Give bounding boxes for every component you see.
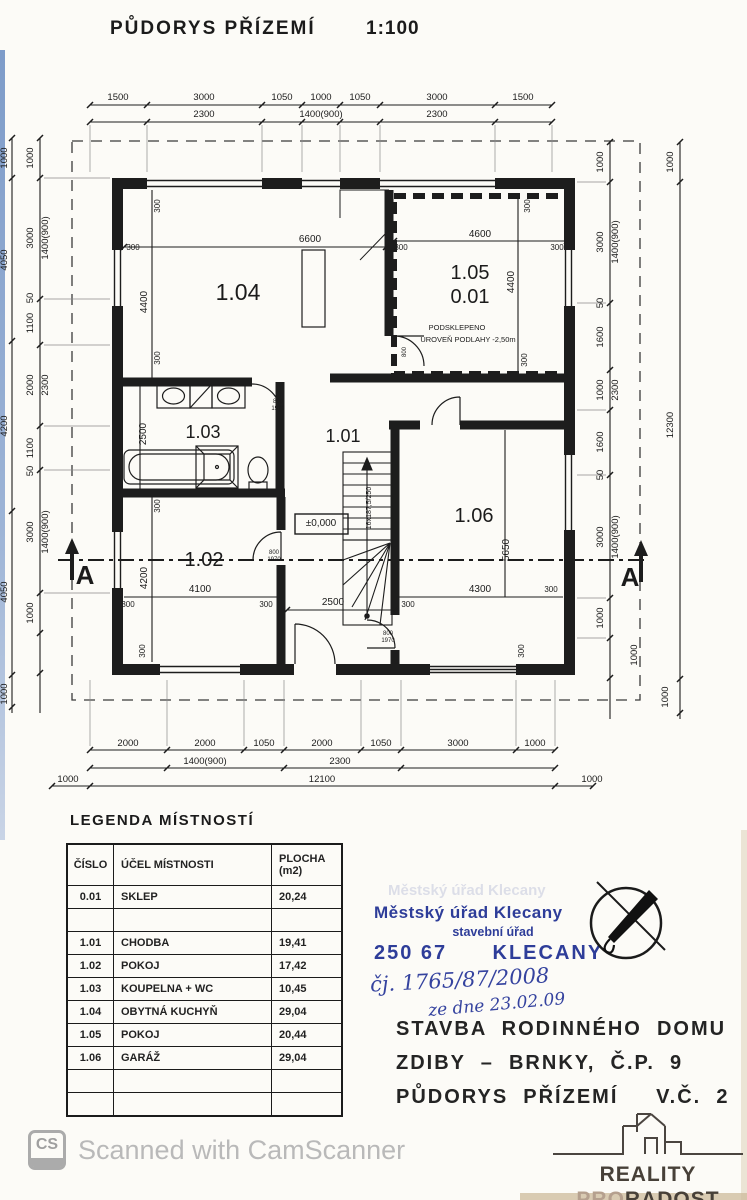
dimension-label: 1000 bbox=[25, 147, 36, 168]
legend-room-number: 1.06 bbox=[67, 1047, 114, 1070]
dimension-label: 6600 bbox=[299, 234, 322, 245]
logo-text-pro: PRO bbox=[576, 1188, 625, 1200]
legend-col-area: PLOCHA (m2) bbox=[272, 844, 343, 886]
section-mark-label: A bbox=[76, 560, 95, 590]
stamp-office-dept: stavební úřad bbox=[374, 925, 612, 939]
dimension-label: 1000 bbox=[25, 602, 36, 623]
dimension-label: 1000 bbox=[57, 774, 78, 785]
legend-row: 1.01CHODBA19,41 bbox=[67, 932, 342, 955]
legend-room-area: 20,24 bbox=[272, 886, 343, 909]
dimension-label: 1500 bbox=[512, 92, 533, 103]
dimension-label: 1100 bbox=[25, 438, 36, 458]
dimension-label: 1000 bbox=[310, 92, 331, 103]
dimension-label: 2500 bbox=[322, 597, 345, 608]
dimension-label: 3000 bbox=[595, 526, 606, 547]
legend-room-purpose: CHODBA bbox=[114, 932, 272, 955]
door-size-label: 800 bbox=[383, 631, 394, 637]
dimension-label: 1500 bbox=[107, 92, 128, 103]
legend-room-purpose: POKOJ bbox=[114, 955, 272, 978]
dimension-label: 300 bbox=[520, 353, 529, 367]
dimension-label: 4300 bbox=[469, 584, 492, 595]
dimension-label: 1000 bbox=[0, 683, 10, 704]
dimension-label: 300 bbox=[523, 199, 532, 213]
dimension-label: 1400(900) bbox=[299, 109, 342, 120]
legend-heading: LEGENDA MÍSTNOSTÍ bbox=[70, 812, 254, 829]
legend-col-purpose: ÚČEL MÍSTNOSTI bbox=[114, 844, 272, 886]
door-entry bbox=[295, 624, 335, 664]
legend-row: 1.04OBYTNÁ KUCHYŇ29,04 bbox=[67, 1001, 342, 1024]
door-size-label: 800 bbox=[269, 550, 280, 556]
door-size-label: 800 bbox=[402, 346, 408, 357]
legend-room-purpose: GARÁŽ bbox=[114, 1047, 272, 1070]
legend-table: ČÍSLO ÚČEL MÍSTNOSTI PLOCHA (m2) 0.01SKL… bbox=[66, 843, 343, 1117]
camscanner-badge-bar bbox=[31, 1158, 63, 1167]
dimension-label: 1400(900) bbox=[40, 216, 51, 259]
dimension-label: 1050 bbox=[349, 92, 370, 103]
floor-plan-drawing: 150030001050100010503000150023001400(900… bbox=[0, 0, 747, 810]
section-arrow-right bbox=[634, 540, 648, 556]
dimension-label: 1000 bbox=[595, 607, 606, 628]
stamp-office-name: Městský úřad Klecany bbox=[374, 903, 612, 923]
dimension-label: 1000 bbox=[595, 151, 606, 172]
dimension-label: 300 bbox=[153, 499, 162, 513]
legend-room-number: 1.03 bbox=[67, 978, 114, 1001]
legend-col-number: ČÍSLO bbox=[67, 844, 114, 886]
section-mark-label: A bbox=[621, 562, 640, 592]
dimension-label: 1100 bbox=[25, 313, 36, 333]
dimension-label: 2300 bbox=[610, 379, 621, 400]
dimension-label: 300 bbox=[153, 351, 162, 365]
logo-text-proradost: PRORADOST bbox=[553, 1188, 743, 1200]
dimension-label: 3000 bbox=[25, 227, 36, 248]
dimension-label: 4100 bbox=[189, 584, 212, 595]
dimension-label: PODSKLEPENO bbox=[429, 323, 486, 332]
compass-north-symbol bbox=[583, 880, 669, 966]
camscanner-badge-text: CS bbox=[36, 1136, 58, 1154]
project-title-block: STAVBA RODINNÉHO DOMU ZDIBY – BRNKY, Č.P… bbox=[396, 1018, 729, 1120]
legend-room-area: 17,42 bbox=[272, 955, 343, 978]
room-number-label: 0.01 bbox=[451, 286, 490, 308]
room-number-label: 1.02 bbox=[185, 549, 224, 571]
dimension-label: 2300 bbox=[426, 109, 447, 120]
pantry-lines bbox=[340, 190, 389, 260]
stamp-office-city: 250 67 KLECANY bbox=[374, 942, 603, 965]
dimension-label: 1000 bbox=[595, 379, 606, 400]
realty-logo: REALITY PRORADOST bbox=[553, 1112, 743, 1200]
legend-col-area-line2: (m2) bbox=[279, 865, 302, 877]
legend-room-area: 10,45 bbox=[272, 978, 343, 1001]
dimension-label: 300 bbox=[544, 585, 558, 594]
dimension-label: 2000 bbox=[194, 738, 215, 749]
legend-room-area bbox=[272, 1070, 343, 1093]
dimension-label: 1000 bbox=[660, 686, 671, 707]
dimension-label: 3000 bbox=[595, 231, 606, 252]
legend-row: 1.06GARÁŽ29,04 bbox=[67, 1047, 342, 1070]
dimension-label: 1400(900) bbox=[610, 515, 621, 558]
legend-room-number: 1.05 bbox=[67, 1024, 114, 1047]
camscanner-text: Scanned with CamScanner bbox=[78, 1135, 405, 1166]
legend-room-area: 20,44 bbox=[272, 1024, 343, 1047]
dimension-label: 3000 bbox=[25, 521, 36, 542]
dimension-label: 50 bbox=[595, 470, 606, 481]
dimension-label: 300 bbox=[121, 600, 135, 609]
logo-text-reality: REALITY bbox=[553, 1163, 743, 1187]
room-number-label: 1.06 bbox=[455, 505, 494, 527]
dimension-label: 50 bbox=[25, 466, 36, 477]
kitchen-block bbox=[302, 250, 325, 327]
dimension-label: 12100 bbox=[309, 774, 335, 785]
room-number-label: 1.03 bbox=[185, 422, 220, 442]
legend-row: 1.05POKOJ20,44 bbox=[67, 1024, 342, 1047]
house-outline-icon bbox=[553, 1112, 743, 1156]
dimension-label: 300 bbox=[550, 243, 564, 252]
legend-room-purpose bbox=[114, 909, 272, 932]
dimension-label: 1050 bbox=[271, 92, 292, 103]
legend-room-number: 1.04 bbox=[67, 1001, 114, 1024]
dimension-label: 4400 bbox=[506, 270, 517, 293]
stamp-handwriting-date: ze dne 23.02.09 bbox=[427, 989, 566, 1021]
legend-row bbox=[67, 909, 342, 932]
dimension-label: 1000 bbox=[629, 644, 640, 665]
dimension-label: 2000 bbox=[117, 738, 138, 749]
dimension-label: 300 bbox=[126, 243, 140, 252]
legend-row: 1.02POKOJ17,42 bbox=[67, 955, 342, 978]
stair-label: 16x187,5/250 bbox=[366, 487, 373, 530]
room-number-label: 1.04 bbox=[216, 279, 261, 305]
dimension-label: ÚROVEŇ PODLAHY -2,50m bbox=[420, 335, 515, 344]
dimension-label: 2300 bbox=[40, 374, 51, 395]
legend-room-purpose: KOUPELNA + WC bbox=[114, 978, 272, 1001]
project-line-building: STAVBA RODINNÉHO DOMU bbox=[396, 1018, 729, 1041]
dimension-label: 1050 bbox=[253, 738, 274, 749]
door-size-label: 800 bbox=[273, 399, 284, 405]
legend-room-area: 19,41 bbox=[272, 932, 343, 955]
dimension-label: 1600 bbox=[595, 431, 606, 452]
legend-room-number bbox=[67, 909, 114, 932]
dimension-label: 2000 bbox=[311, 738, 332, 749]
legend-room-number: 1.02 bbox=[67, 955, 114, 978]
dimension-label: 300 bbox=[138, 644, 147, 658]
dimension-label: 1400(900) bbox=[183, 756, 226, 767]
section-arrow-left bbox=[65, 538, 79, 554]
dimension-label: 1000 bbox=[0, 147, 10, 168]
basement-dashed-outline bbox=[394, 196, 567, 374]
dimension-label: 300 bbox=[394, 243, 408, 252]
logo-text-radost: RADOST bbox=[625, 1188, 720, 1200]
legend-room-number bbox=[67, 1070, 114, 1093]
dimension-label: 300 bbox=[517, 644, 526, 658]
door-size-label: 1970 bbox=[271, 406, 285, 412]
dimension-label: 4200 bbox=[0, 415, 10, 436]
dimension-label: 50 bbox=[25, 293, 36, 304]
dimension-label: 300 bbox=[259, 600, 273, 609]
legend-room-purpose: OBYTNÁ KUCHYŇ bbox=[114, 1001, 272, 1024]
dimension-label: 4600 bbox=[469, 229, 492, 240]
wc bbox=[248, 457, 268, 483]
dimension-label: 2500 bbox=[138, 422, 149, 445]
legend-col-area-line1: PLOCHA bbox=[279, 853, 325, 865]
dimension-label: 50 bbox=[595, 298, 606, 309]
legend-row bbox=[67, 1093, 342, 1117]
dimension-label: 12300 bbox=[665, 412, 676, 438]
scanned-floorplan-page: PŮDORYS PŘÍZEMÍ 1:100 bbox=[0, 0, 747, 1200]
dimension-label: 3000 bbox=[447, 738, 468, 749]
dimension-label: 1050 bbox=[370, 738, 391, 749]
door-size-label: 1970 bbox=[381, 638, 395, 644]
legend-row: 0.01SKLEP20,24 bbox=[67, 886, 342, 909]
dimension-label: 4050 bbox=[0, 581, 10, 602]
project-line-location: ZDIBY – BRNKY, Č.P. 9 bbox=[396, 1052, 729, 1075]
legend-room-purpose bbox=[114, 1070, 272, 1093]
level-label: ±0,000 bbox=[306, 518, 337, 529]
staircase bbox=[343, 452, 392, 625]
legend-room-area: 29,04 bbox=[272, 1047, 343, 1070]
legend-row bbox=[67, 1070, 342, 1093]
dimension-label: 1400(900) bbox=[610, 220, 621, 263]
dimension-label: 1000 bbox=[524, 738, 545, 749]
dimension-label: 4200 bbox=[139, 566, 150, 589]
legend-row: 1.03KOUPELNA + WC10,45 bbox=[67, 978, 342, 1001]
dimension-label: 2300 bbox=[193, 109, 214, 120]
legend-room-area bbox=[272, 909, 343, 932]
dimension-label: 2300 bbox=[329, 756, 350, 767]
legend-room-number bbox=[67, 1093, 114, 1117]
dimension-label: 300 bbox=[401, 600, 415, 609]
room-number-label: 1.05 bbox=[451, 262, 490, 284]
dimension-label: 4400 bbox=[139, 290, 150, 313]
legend-room-purpose: POKOJ bbox=[114, 1024, 272, 1047]
room-number-label: 1.01 bbox=[325, 426, 360, 446]
dimension-label: 4050 bbox=[0, 249, 10, 270]
legend-room-number: 1.01 bbox=[67, 932, 114, 955]
legend-room-number: 0.01 bbox=[67, 886, 114, 909]
project-line-drawing: PŮDORYS PŘÍZEMÍ V.Č. 2 bbox=[396, 1086, 729, 1109]
door-vestibule bbox=[432, 397, 460, 425]
camscanner-badge-icon: CS bbox=[28, 1130, 66, 1170]
dimension-label: 5650 bbox=[501, 538, 512, 561]
legend-room-area: 29,04 bbox=[272, 1001, 343, 1024]
dimension-label: 1000 bbox=[665, 151, 676, 172]
dimension-label: 3000 bbox=[193, 92, 214, 103]
dimension-label: 1400(900) bbox=[40, 510, 51, 553]
legend-room-purpose: SKLEP bbox=[114, 886, 272, 909]
legend-room-area bbox=[272, 1093, 343, 1117]
legend-room-purpose bbox=[114, 1093, 272, 1117]
dimension-label: 3000 bbox=[426, 92, 447, 103]
camscanner-watermark: CS Scanned with CamScanner bbox=[28, 1130, 405, 1170]
dimension-label: 2000 bbox=[25, 374, 36, 395]
dimension-label: 1600 bbox=[595, 326, 606, 347]
door-size-label: 1970 bbox=[267, 557, 281, 563]
dimension-label: 300 bbox=[153, 199, 162, 213]
dimension-label: 1000 bbox=[581, 774, 602, 785]
